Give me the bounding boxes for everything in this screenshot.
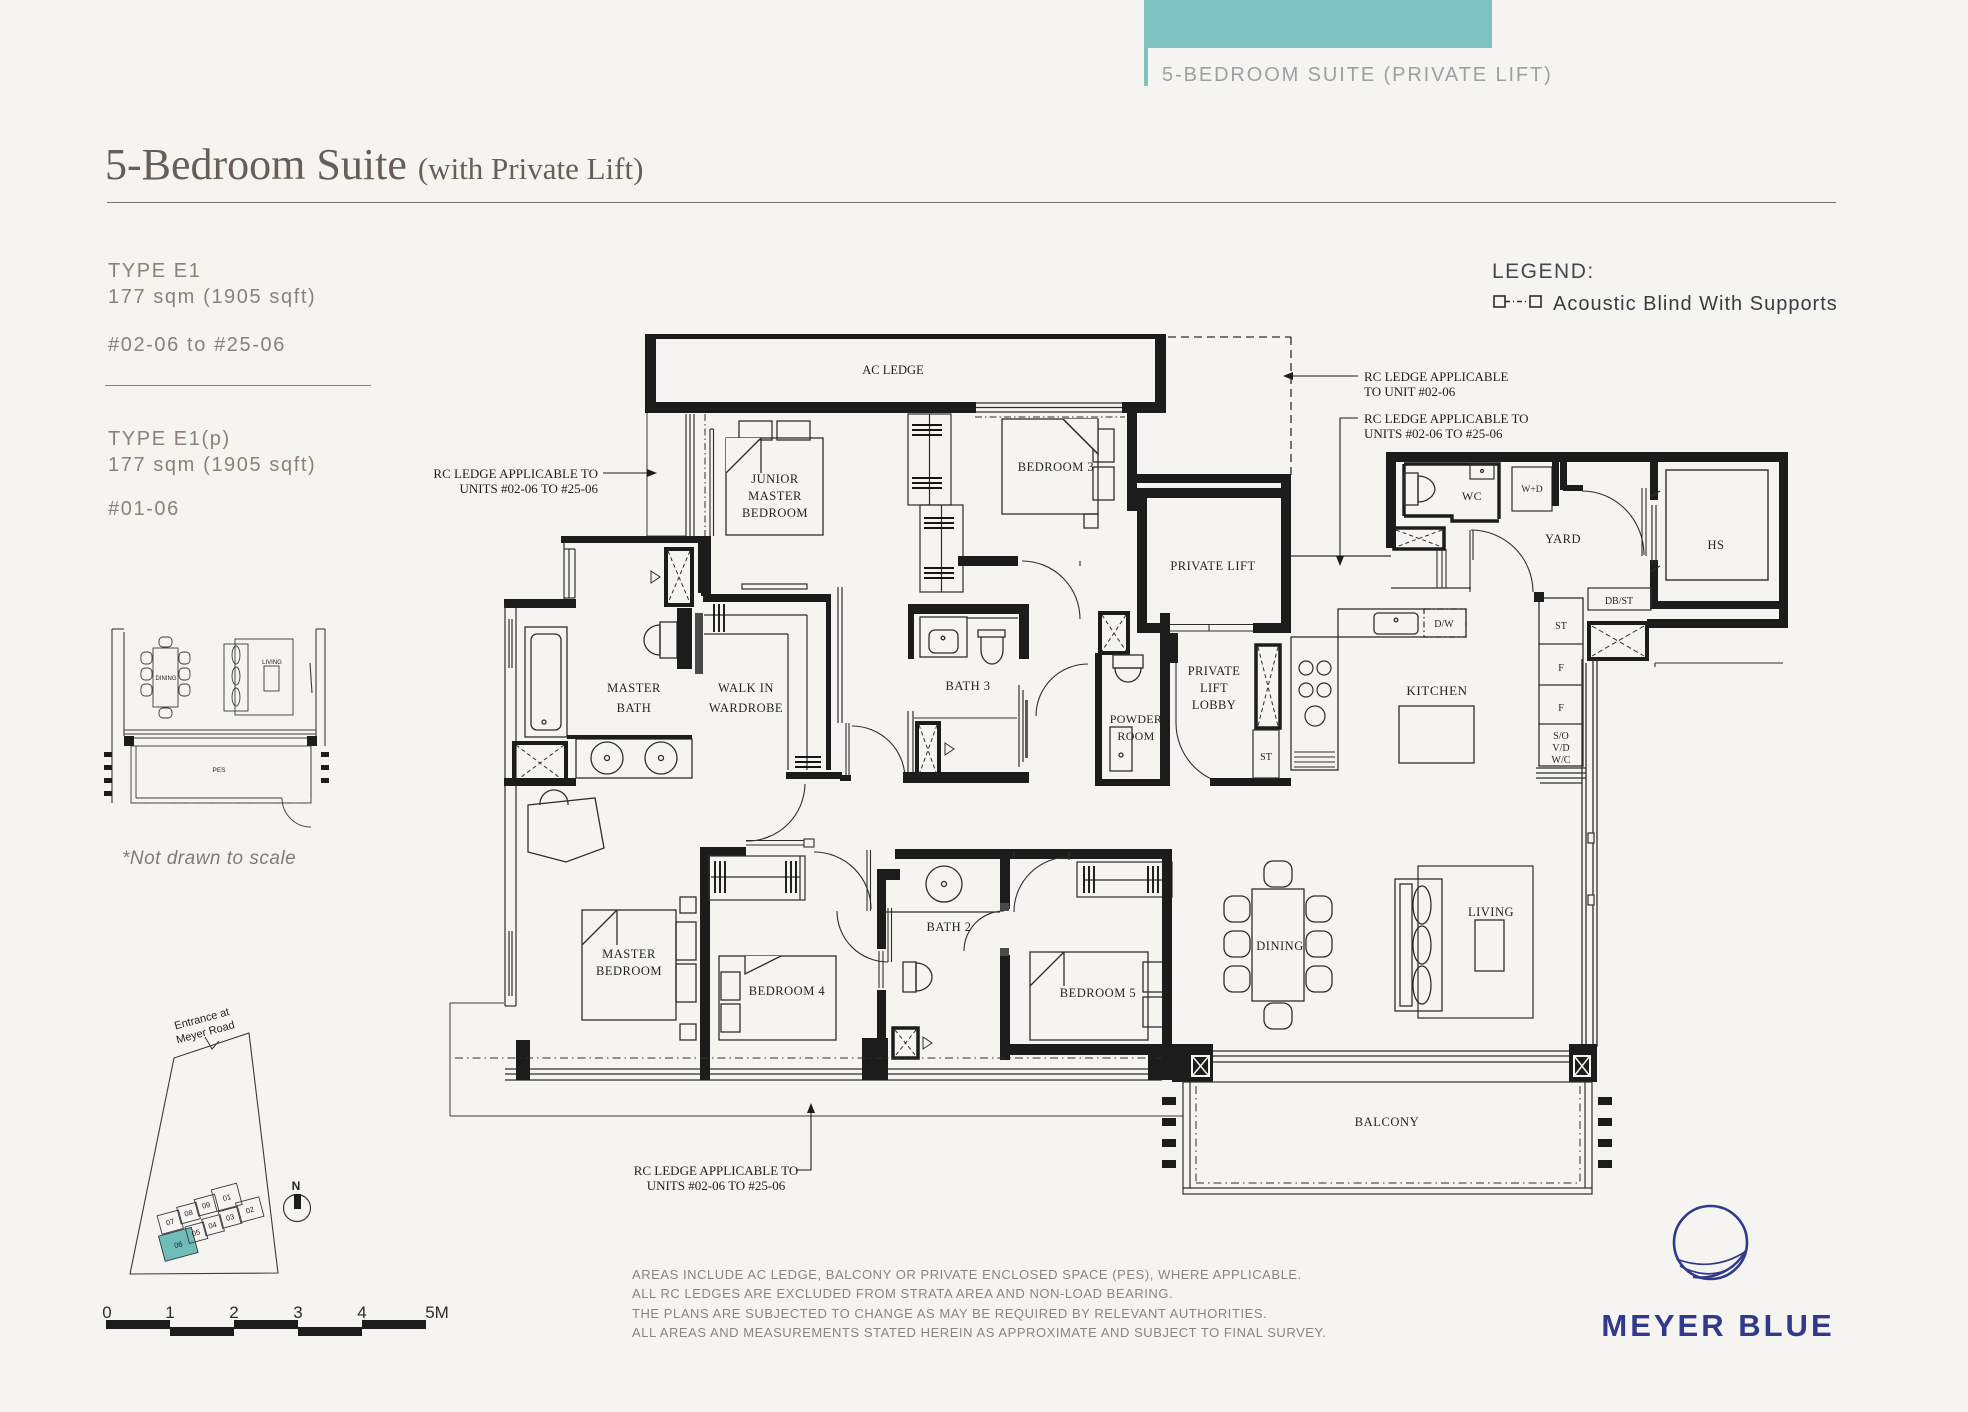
svg-text:RC LEDGE APPLICABLE TO: RC LEDGE APPLICABLE TO — [634, 1163, 799, 1178]
svg-text:1: 1 — [165, 1303, 174, 1322]
svg-text:LIVING: LIVING — [1468, 905, 1514, 919]
svg-text:08: 08 — [183, 1208, 193, 1219]
svg-text:BEDROOM 3: BEDROOM 3 — [1018, 460, 1094, 474]
svg-text:DINING: DINING — [1256, 939, 1303, 953]
svg-text:04: 04 — [207, 1220, 217, 1231]
svg-text:PES: PES — [212, 767, 226, 774]
svg-text:F: F — [1558, 663, 1564, 674]
svg-text:09: 09 — [201, 1200, 211, 1211]
svg-text:ROOM: ROOM — [1117, 729, 1154, 743]
svg-text:BALCONY: BALCONY — [1355, 1115, 1420, 1129]
svg-text:S/O: S/O — [1553, 731, 1569, 742]
svg-text:BEDROOM 4: BEDROOM 4 — [749, 984, 826, 998]
svg-text:HS: HS — [1708, 538, 1725, 552]
svg-text:ST: ST — [1555, 621, 1567, 632]
svg-text:RC LEDGE APPLICABLE TO: RC LEDGE APPLICABLE TO — [433, 466, 598, 481]
svg-text:D/W: D/W — [1434, 619, 1454, 630]
svg-text:03: 03 — [225, 1212, 235, 1223]
svg-text:RC LEDGE APPLICABLE: RC LEDGE APPLICABLE — [1364, 369, 1509, 384]
svg-text:BATH 3: BATH 3 — [945, 679, 990, 693]
svg-text:PRIVATE: PRIVATE — [1188, 664, 1241, 678]
svg-text:3: 3 — [293, 1303, 302, 1322]
svg-text:JUNIOR: JUNIOR — [751, 472, 799, 486]
svg-text:01: 01 — [222, 1192, 232, 1203]
svg-text:POWDER: POWDER — [1110, 712, 1162, 726]
svg-text:AC LEDGE: AC LEDGE — [862, 363, 924, 377]
svg-text:0: 0 — [102, 1303, 111, 1322]
svg-text:W+D: W+D — [1521, 485, 1542, 495]
svg-text:TO UNIT #02-06: TO UNIT #02-06 — [1364, 384, 1456, 399]
svg-text:07: 07 — [165, 1217, 175, 1228]
svg-text:BEDROOM 5: BEDROOM 5 — [1060, 986, 1136, 1000]
svg-text:02: 02 — [245, 1205, 255, 1216]
svg-text:MASTER: MASTER — [748, 489, 802, 503]
svg-text:UNITS #02-06 TO #25-06: UNITS #02-06 TO #25-06 — [459, 481, 598, 496]
svg-text:PRIVATE LIFT: PRIVATE LIFT — [1170, 559, 1255, 573]
svg-text:DB/ST: DB/ST — [1605, 596, 1633, 607]
svg-text:ST: ST — [1260, 752, 1272, 763]
svg-text:V/D: V/D — [1552, 743, 1569, 754]
svg-text:WARDROBE: WARDROBE — [709, 701, 783, 715]
svg-text:05: 05 — [191, 1227, 201, 1238]
svg-text:BATH 2: BATH 2 — [926, 920, 971, 934]
svg-text:F: F — [1558, 703, 1564, 714]
svg-text:YARD: YARD — [1545, 532, 1581, 546]
svg-text:BEDROOM: BEDROOM — [596, 964, 662, 978]
svg-text:2: 2 — [229, 1303, 238, 1322]
svg-text:WALK IN: WALK IN — [718, 681, 774, 695]
svg-text:LOBBY: LOBBY — [1192, 698, 1236, 712]
svg-text:BEDROOM: BEDROOM — [742, 506, 808, 520]
svg-text:MASTER: MASTER — [602, 947, 656, 961]
svg-text:4: 4 — [357, 1303, 366, 1322]
svg-text:W/C: W/C — [1552, 755, 1571, 766]
svg-text:MASTER: MASTER — [607, 681, 661, 695]
svg-text:UNITS #02-06 TO #25-06: UNITS #02-06 TO #25-06 — [1364, 426, 1503, 441]
svg-text:WC: WC — [1462, 489, 1482, 503]
svg-text:LIFT: LIFT — [1200, 681, 1228, 695]
svg-text:RC LEDGE APPLICABLE TO: RC LEDGE APPLICABLE TO — [1364, 411, 1529, 426]
svg-text:DINING: DINING — [156, 676, 177, 682]
svg-text:KITCHEN: KITCHEN — [1406, 683, 1467, 698]
svg-text:LIVING: LIVING — [262, 660, 282, 666]
svg-text:N: N — [292, 1179, 301, 1193]
svg-text:BATH: BATH — [617, 701, 652, 715]
svg-text:UNITS #02-06 TO #25-06: UNITS #02-06 TO #25-06 — [647, 1178, 786, 1193]
svg-text:5M: 5M — [425, 1303, 449, 1322]
